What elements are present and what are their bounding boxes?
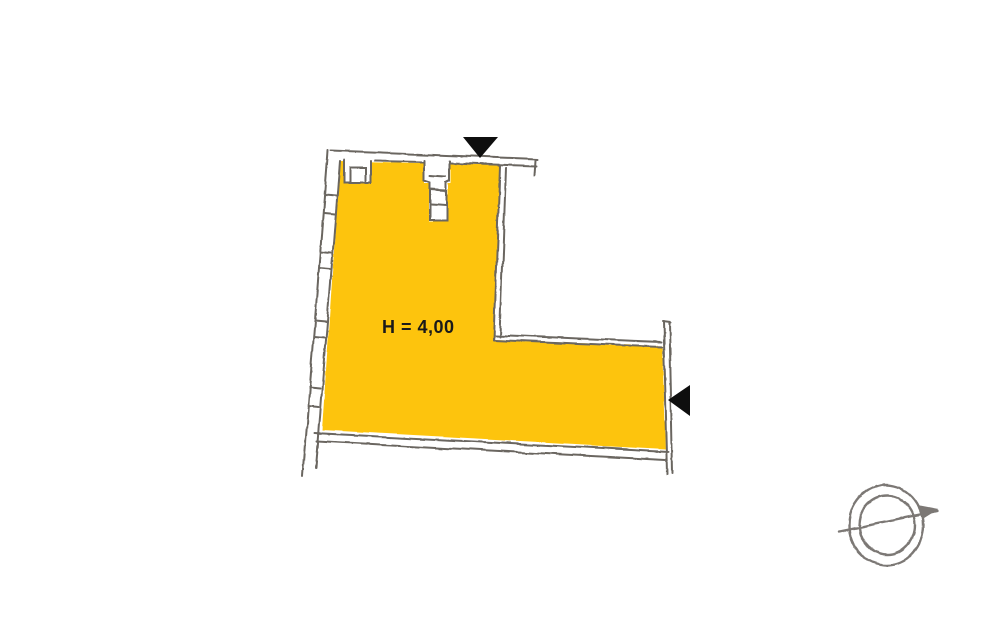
room-height-label: H = 4,00 [382, 317, 455, 337]
floor-plan-canvas: H = 4,00 [0, 0, 1000, 620]
floor-plan-page: H = 4,00 [0, 0, 1000, 620]
room-area [322, 161, 666, 449]
wall-notch-detail [350, 168, 366, 183]
room-shape-group [322, 158, 666, 449]
down-triangle-icon [463, 137, 498, 158]
compass-icon [839, 485, 938, 565]
